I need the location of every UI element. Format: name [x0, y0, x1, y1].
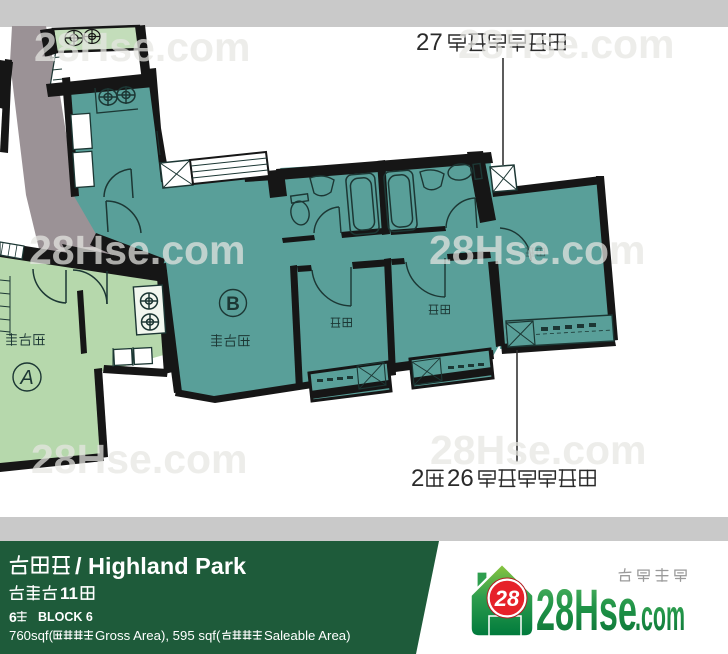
svg-text:28Hse.com: 28Hse.com [31, 436, 248, 482]
svg-text:27: 27 [416, 29, 443, 56]
svg-text:28Hse: 28Hse [536, 578, 637, 643]
svg-text:28Hse.com: 28Hse.com [430, 427, 647, 473]
svg-text:Gross Area), 595 sqf(: Gross Area), 595 sqf( [95, 628, 221, 643]
svg-text:11: 11 [60, 584, 78, 603]
svg-text:Saleable Area): Saleable Area) [264, 628, 351, 643]
svg-text:A: A [19, 367, 33, 389]
svg-text:BLOCK 6: BLOCK 6 [38, 610, 93, 624]
svg-text:/ Highland Park: / Highland Park [75, 553, 247, 579]
svg-text:6: 6 [9, 609, 17, 625]
svg-text:28Hse.com: 28Hse.com [34, 24, 251, 70]
svg-text:760sqf(: 760sqf( [9, 628, 54, 643]
svg-text:.com: .com [635, 592, 685, 640]
svg-text:28Hse.com: 28Hse.com [429, 227, 646, 273]
svg-text:28Hse.com: 28Hse.com [29, 227, 246, 273]
svg-text:B: B [226, 294, 240, 315]
svg-text:2: 2 [411, 465, 424, 492]
svg-text:28: 28 [494, 586, 520, 611]
svg-text:28Hse.com: 28Hse.com [458, 21, 675, 67]
